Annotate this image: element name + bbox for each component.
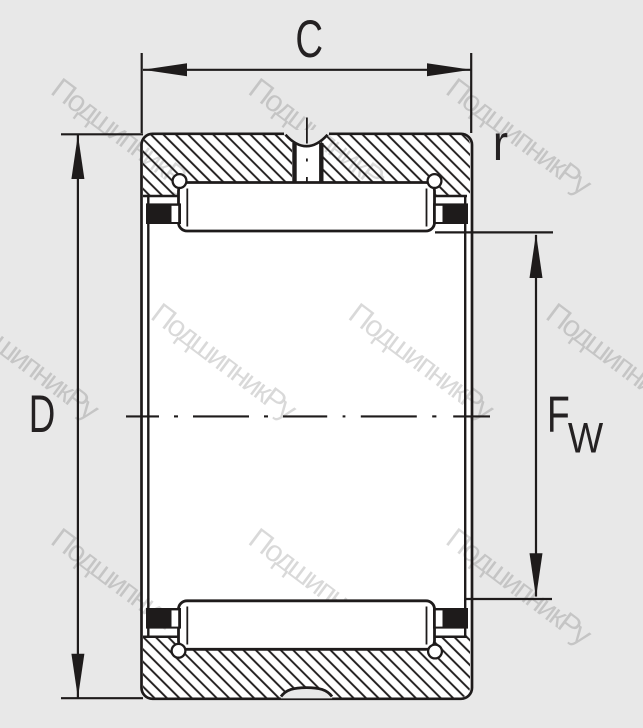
svg-text:W: W <box>568 415 604 462</box>
svg-text:C: C <box>295 9 323 68</box>
svg-text:F: F <box>547 387 570 443</box>
svg-text:r: r <box>493 116 508 171</box>
svg-text:D: D <box>29 384 56 443</box>
